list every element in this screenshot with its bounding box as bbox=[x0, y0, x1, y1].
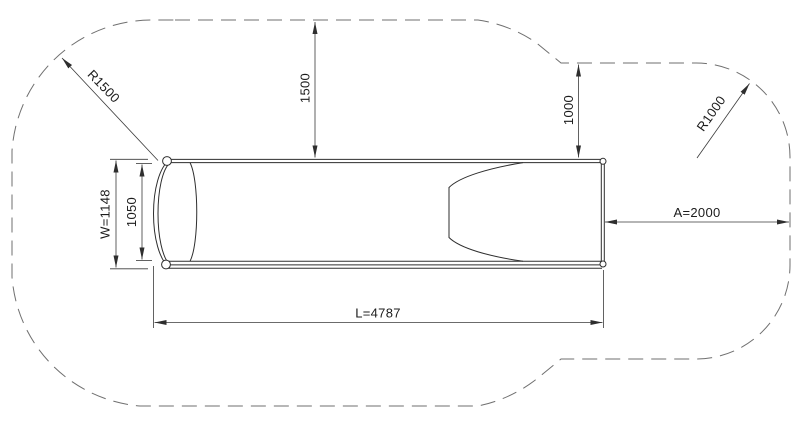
slide-connector-top-left bbox=[163, 157, 172, 166]
slide-connector-bottom-right bbox=[600, 261, 606, 267]
drawing-svg: R1500 1500 1000 R1000 W=1148 1050 bbox=[0, 0, 800, 429]
slide-end-cap-outer-arc bbox=[154, 160, 171, 269]
overall-width-label: W=1148 bbox=[97, 189, 112, 239]
dimension-radius-right: R1000 bbox=[694, 84, 750, 159]
slide-end-cap-inner-arc bbox=[158, 163, 170, 265]
radius-left-leader-line bbox=[62, 58, 158, 161]
radius-left-label: R1500 bbox=[85, 67, 123, 106]
clearance-top-label: 1500 bbox=[297, 73, 312, 103]
slide-body bbox=[154, 157, 607, 269]
overall-length-label: L=4787 bbox=[355, 306, 401, 321]
dimension-clearance-top-right: 1000 bbox=[561, 65, 579, 158]
slide-connector-bottom-left bbox=[162, 260, 171, 269]
slide-connector-top-right bbox=[600, 158, 606, 164]
dimension-overall-width: W=1148 bbox=[97, 159, 148, 268]
inner-width-label: 1050 bbox=[124, 197, 139, 227]
slide-entry-taper bbox=[449, 163, 523, 262]
technical-drawing-canvas: R1500 1500 1000 R1000 W=1148 1050 bbox=[0, 0, 800, 429]
slide-bed-transition-curve bbox=[190, 163, 197, 262]
dimension-inner-width: 1050 bbox=[124, 164, 152, 261]
radius-right-label: R1000 bbox=[694, 93, 729, 134]
clearance-top-right-label: 1000 bbox=[561, 95, 576, 125]
dimension-side-clearance: A=2000 bbox=[605, 205, 789, 222]
dimension-overall-length: L=4787 bbox=[154, 266, 604, 328]
side-clearance-label: A=2000 bbox=[674, 205, 721, 220]
dimension-radius-left: R1500 bbox=[62, 58, 158, 161]
dimension-clearance-top: 1500 bbox=[297, 22, 315, 158]
